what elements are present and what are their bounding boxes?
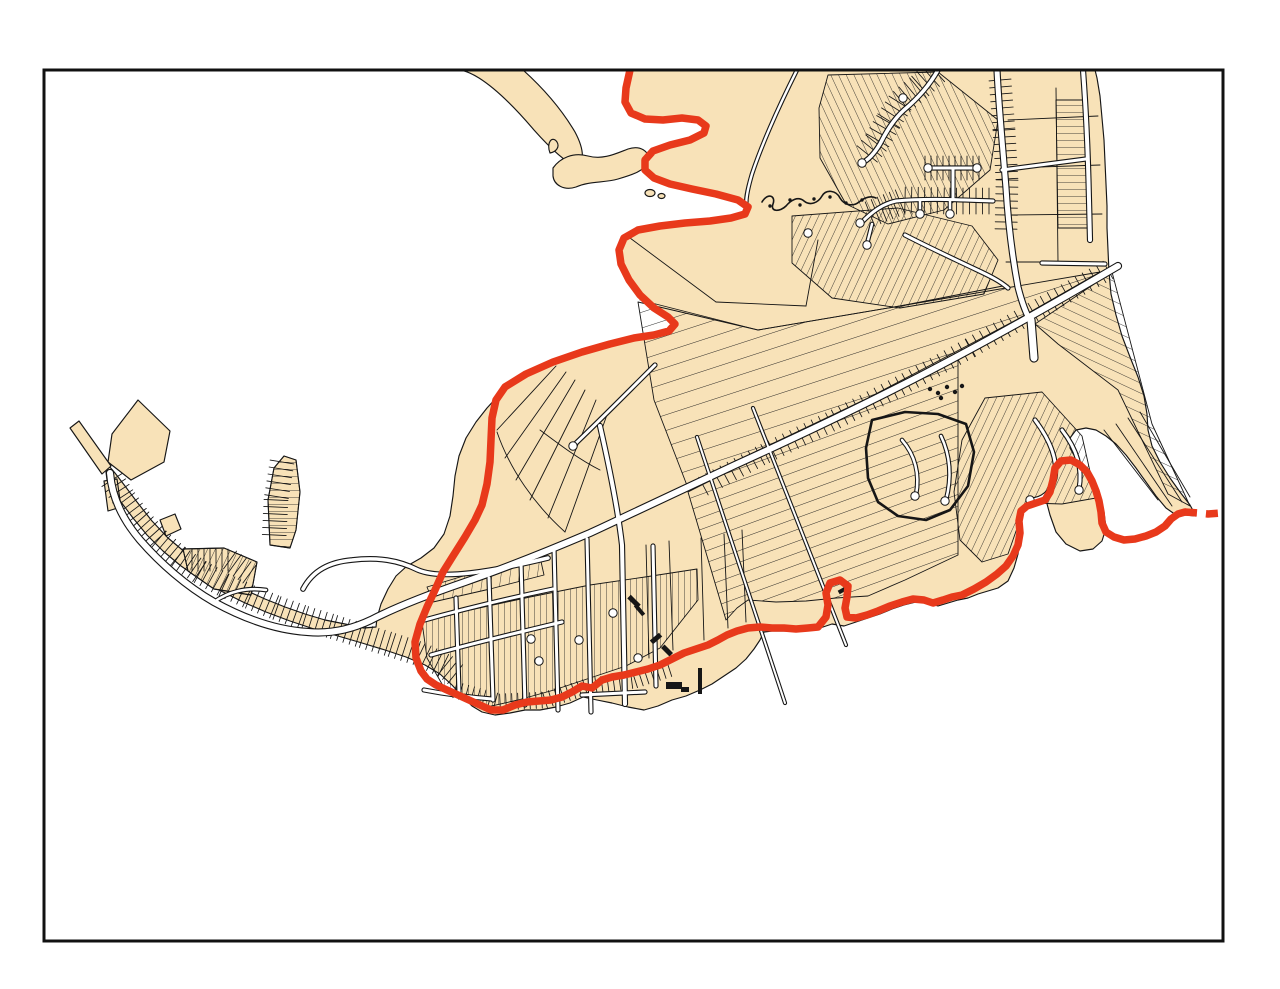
- parcel-map-canvas: [0, 0, 1280, 989]
- page-background: [0, 0, 1280, 989]
